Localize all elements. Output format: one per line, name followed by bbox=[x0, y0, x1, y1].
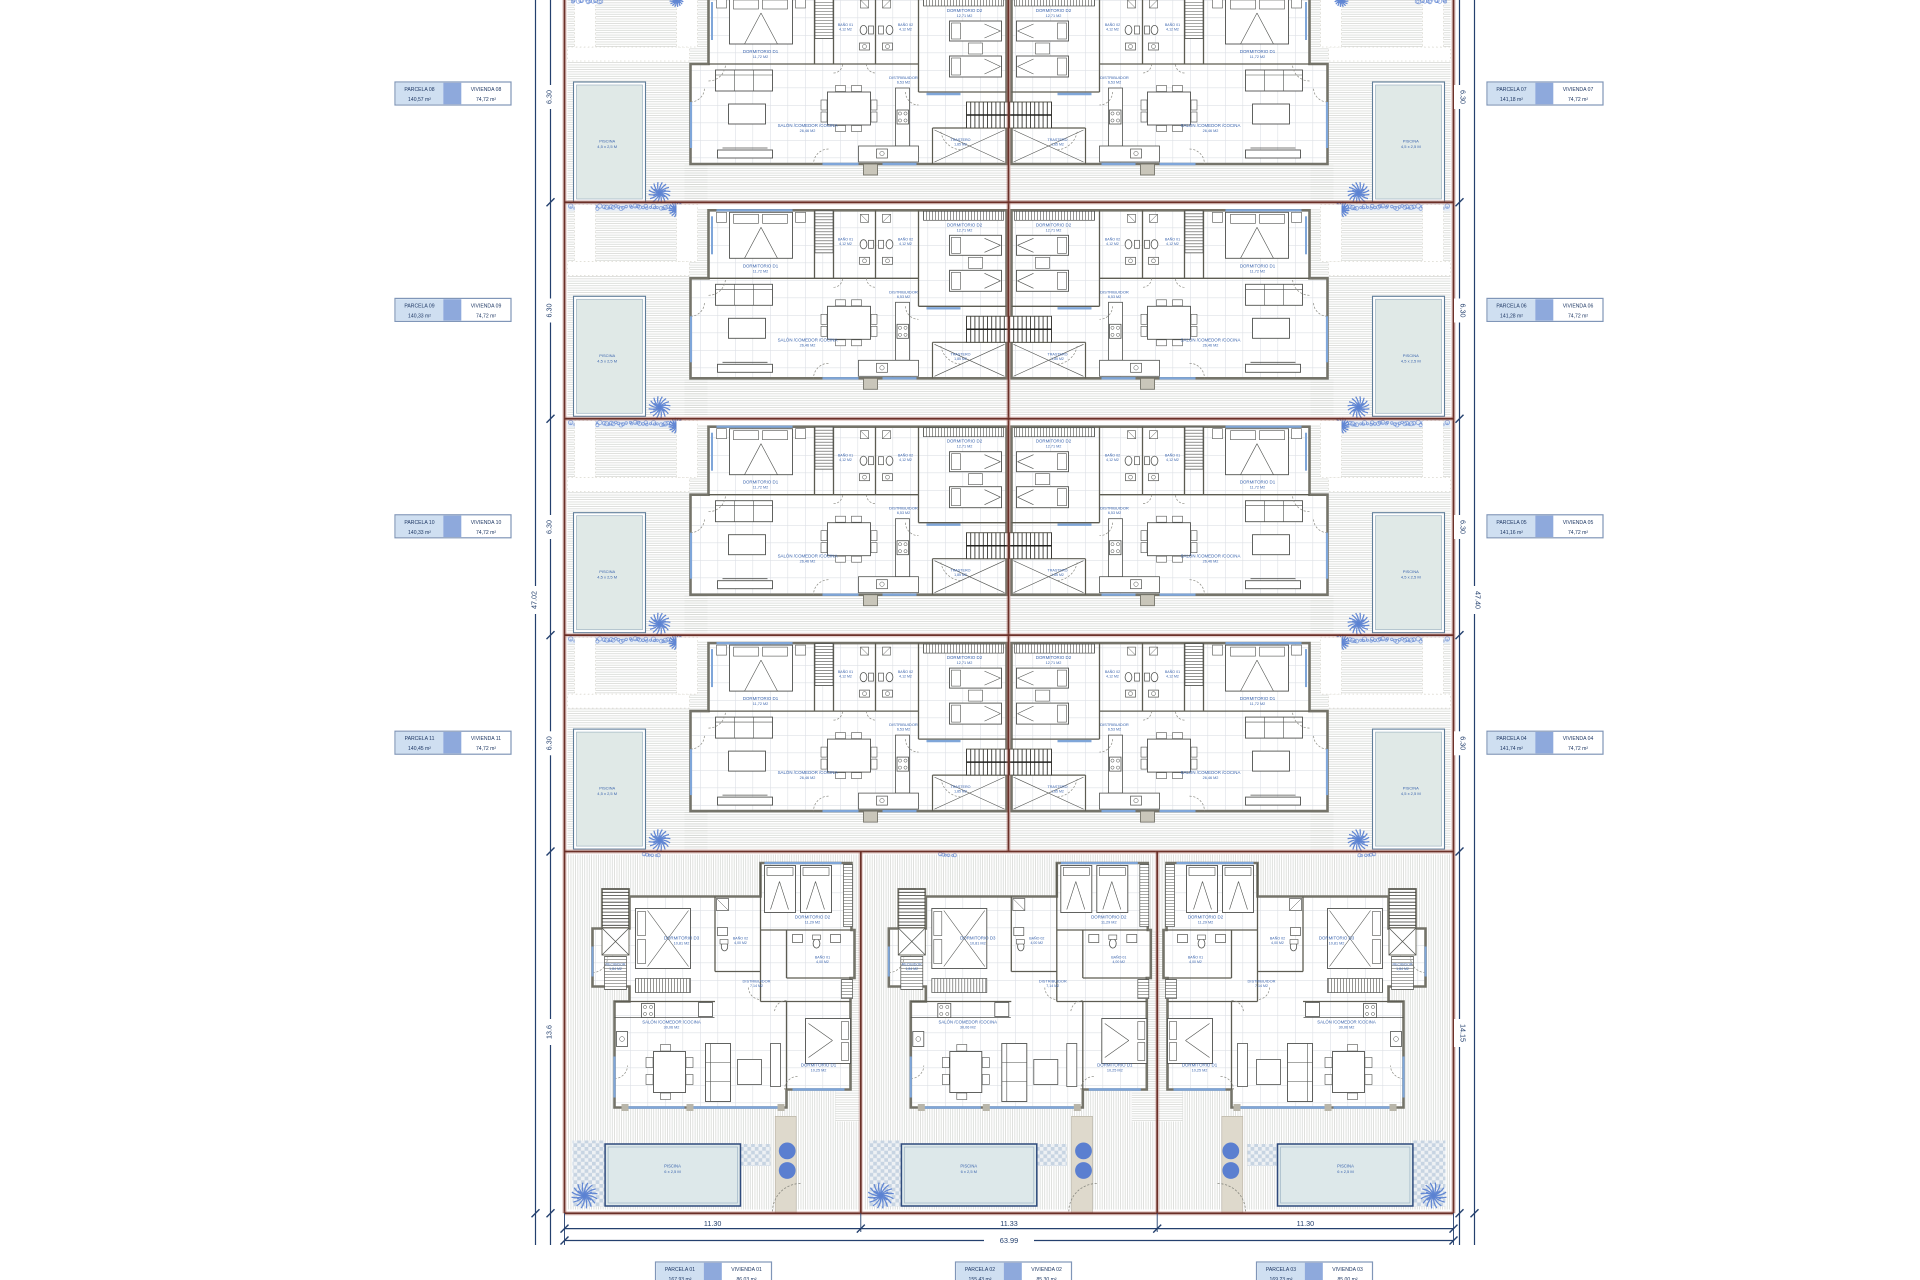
svg-text:TRASTERO: TRASTERO bbox=[1047, 352, 1067, 356]
svg-text:DISTRIBUIDOR: DISTRIBUIDOR bbox=[1100, 75, 1129, 80]
svg-text:BAÑO 01: BAÑO 01 bbox=[1165, 453, 1180, 458]
svg-text:30,06 M2: 30,06 M2 bbox=[664, 1026, 680, 1030]
svg-text:12,71 M2: 12,71 M2 bbox=[1046, 661, 1062, 665]
svg-text:RECIBIDOR: RECIBIDOR bbox=[902, 963, 922, 967]
svg-text:DORMITORIO D2: DORMITORIO D2 bbox=[795, 915, 831, 920]
svg-text:4,12 M2: 4,12 M2 bbox=[1166, 28, 1179, 32]
svg-text:4,5 x 2,5 M: 4,5 x 2,5 M bbox=[597, 575, 617, 580]
svg-text:141,74 m²: 141,74 m² bbox=[1500, 746, 1523, 752]
svg-text:DORMITORIO D3: DORMITORIO D3 bbox=[960, 936, 996, 941]
svg-text:26,46 M2: 26,46 M2 bbox=[800, 776, 816, 780]
svg-text:74,72 m²: 74,72 m² bbox=[476, 746, 496, 752]
svg-text:SALÓN /COMEDOR /COCINA: SALÓN /COMEDOR /COCINA bbox=[1317, 1020, 1376, 1025]
svg-text:VIVIENDA 02: VIVIENDA 02 bbox=[1031, 1267, 1062, 1273]
svg-text:74,72 m²: 74,72 m² bbox=[1568, 313, 1588, 319]
svg-text:BAÑO 01: BAÑO 01 bbox=[1188, 955, 1203, 960]
svg-text:BAÑO 02: BAÑO 02 bbox=[898, 236, 913, 241]
svg-text:BAÑO 01: BAÑO 01 bbox=[838, 236, 853, 241]
svg-text:12,71 M2: 12,71 M2 bbox=[957, 228, 973, 232]
svg-text:4,5 x 2,5 M: 4,5 x 2,5 M bbox=[1401, 358, 1421, 363]
svg-text:74,72 m²: 74,72 m² bbox=[476, 313, 496, 319]
svg-text:SALÓN /COMEDOR /COCINA: SALÓN /COMEDOR /COCINA bbox=[1181, 337, 1241, 342]
svg-text:PISCINA: PISCINA bbox=[1403, 353, 1419, 358]
svg-text:6 x 2,5 M: 6 x 2,5 M bbox=[961, 1169, 977, 1174]
svg-text:1,85 M2: 1,85 M2 bbox=[954, 790, 967, 794]
svg-text:12,71 M2: 12,71 M2 bbox=[957, 661, 973, 665]
svg-text:SALÓN /COMEDOR /COCINA: SALÓN /COMEDOR /COCINA bbox=[1181, 554, 1241, 559]
svg-text:7,14 M2: 7,14 M2 bbox=[750, 984, 763, 988]
svg-text:PARCELA 08: PARCELA 08 bbox=[404, 87, 434, 93]
svg-text:6 x 2,5 M: 6 x 2,5 M bbox=[1337, 1169, 1353, 1174]
svg-text:6.30: 6.30 bbox=[1459, 90, 1468, 104]
svg-text:PISCINA: PISCINA bbox=[664, 1164, 681, 1169]
svg-text:PISCINA: PISCINA bbox=[599, 786, 615, 791]
svg-text:DORMITORIO D1: DORMITORIO D1 bbox=[1240, 480, 1276, 485]
svg-text:TRASTERO: TRASTERO bbox=[1047, 785, 1067, 789]
svg-text:30,06 M2: 30,06 M2 bbox=[960, 1026, 976, 1030]
svg-text:DORMITORIO D2: DORMITORIO D2 bbox=[947, 655, 983, 660]
svg-text:RECIBIDOR: RECIBIDOR bbox=[606, 963, 626, 967]
svg-text:VIVIENDA 03: VIVIENDA 03 bbox=[1332, 1267, 1363, 1273]
svg-text:10,25 M2: 10,25 M2 bbox=[811, 1069, 827, 1073]
svg-text:TRASTERO: TRASTERO bbox=[1047, 569, 1067, 573]
svg-text:BAÑO 02: BAÑO 02 bbox=[898, 669, 913, 674]
svg-text:140,33 m²: 140,33 m² bbox=[408, 313, 431, 319]
svg-text:DORMITORIO D3: DORMITORIO D3 bbox=[1319, 936, 1355, 941]
svg-text:4,00 M2: 4,00 M2 bbox=[1112, 960, 1125, 964]
svg-text:BAÑO 01: BAÑO 01 bbox=[1165, 669, 1180, 674]
svg-text:141,16 m²: 141,16 m² bbox=[1500, 530, 1523, 536]
svg-text:PARCELA 11: PARCELA 11 bbox=[405, 736, 435, 742]
svg-text:1,84 M2: 1,84 M2 bbox=[609, 967, 622, 971]
svg-text:BAÑO 02: BAÑO 02 bbox=[1105, 453, 1120, 458]
svg-text:PARCELA 04: PARCELA 04 bbox=[1496, 736, 1526, 742]
svg-text:BAÑO 01: BAÑO 01 bbox=[838, 669, 853, 674]
svg-text:BAÑO 01: BAÑO 01 bbox=[1165, 236, 1180, 241]
svg-text:DORMITORIO D2: DORMITORIO D2 bbox=[1091, 915, 1127, 920]
svg-text:11,29 M2: 11,29 M2 bbox=[1198, 921, 1214, 925]
svg-text:DORMITORIO D1: DORMITORIO D1 bbox=[1182, 1063, 1218, 1068]
svg-text:1,84 M2: 1,84 M2 bbox=[905, 967, 918, 971]
svg-text:PISCINA: PISCINA bbox=[1403, 569, 1419, 574]
svg-text:PARCELA 07: PARCELA 07 bbox=[1496, 87, 1526, 93]
svg-text:12,71 M2: 12,71 M2 bbox=[957, 445, 973, 449]
svg-text:12,71 M2: 12,71 M2 bbox=[1046, 228, 1062, 232]
svg-text:DORMITORIO D1: DORMITORIO D1 bbox=[743, 480, 779, 485]
svg-text:6,53 M2: 6,53 M2 bbox=[1108, 728, 1121, 732]
svg-text:SALÓN /COMEDOR /COCINA: SALÓN /COMEDOR /COCINA bbox=[778, 123, 838, 128]
svg-text:10,81 M2: 10,81 M2 bbox=[1329, 942, 1345, 946]
svg-text:47.02: 47.02 bbox=[530, 591, 539, 609]
svg-text:4,00 M2: 4,00 M2 bbox=[1271, 941, 1284, 945]
svg-text:74,72 m²: 74,72 m² bbox=[1568, 746, 1588, 752]
svg-text:PISCINA: PISCINA bbox=[1337, 1164, 1354, 1169]
svg-text:PARCELA 06: PARCELA 06 bbox=[1496, 303, 1526, 309]
svg-text:PARCELA 03: PARCELA 03 bbox=[1266, 1267, 1296, 1273]
svg-text:PISCINA: PISCINA bbox=[960, 1164, 977, 1169]
svg-text:12,71 M2: 12,71 M2 bbox=[1046, 445, 1062, 449]
svg-text:14.15: 14.15 bbox=[1459, 1024, 1468, 1042]
svg-text:4,5 x 2,5 M: 4,5 x 2,5 M bbox=[597, 791, 617, 796]
svg-text:4,12 M2: 4,12 M2 bbox=[839, 675, 852, 679]
svg-text:PARCELA 01: PARCELA 01 bbox=[665, 1267, 695, 1273]
svg-text:VIVIENDA 05: VIVIENDA 05 bbox=[1563, 520, 1594, 526]
svg-text:TRASTERO: TRASTERO bbox=[950, 569, 970, 573]
svg-text:10,25 M2: 10,25 M2 bbox=[1192, 1069, 1208, 1073]
svg-text:12,71 M2: 12,71 M2 bbox=[957, 14, 973, 18]
svg-text:74,72 m²: 74,72 m² bbox=[476, 97, 496, 103]
svg-text:140,57 m²: 140,57 m² bbox=[408, 97, 431, 103]
svg-text:BAÑO 01: BAÑO 01 bbox=[815, 955, 830, 960]
svg-text:SALÓN /COMEDOR /COCINA: SALÓN /COMEDOR /COCINA bbox=[778, 337, 838, 342]
svg-text:VIVIENDA 08: VIVIENDA 08 bbox=[471, 87, 502, 93]
svg-text:DISTRIBUIDOR: DISTRIBUIDOR bbox=[1100, 289, 1129, 294]
svg-text:PISCINA: PISCINA bbox=[1403, 139, 1419, 144]
svg-text:DORMITORIO D1: DORMITORIO D1 bbox=[1240, 696, 1276, 701]
svg-text:DORMITORIO D2: DORMITORIO D2 bbox=[947, 222, 983, 227]
svg-text:4,12 M2: 4,12 M2 bbox=[1106, 675, 1119, 679]
svg-text:PISCINA: PISCINA bbox=[599, 353, 615, 358]
svg-text:DORMITORIO D3: DORMITORIO D3 bbox=[664, 936, 700, 941]
svg-text:11,72 M2: 11,72 M2 bbox=[753, 702, 769, 706]
svg-text:30,06 M2: 30,06 M2 bbox=[1339, 1026, 1355, 1030]
svg-text:4,5 x 2,5 M: 4,5 x 2,5 M bbox=[1401, 575, 1421, 580]
svg-text:SALÓN /COMEDOR /COCINA: SALÓN /COMEDOR /COCINA bbox=[642, 1020, 701, 1025]
svg-text:26,46 M2: 26,46 M2 bbox=[1203, 560, 1219, 564]
svg-text:4,5 x 2,5 M: 4,5 x 2,5 M bbox=[1401, 144, 1421, 149]
svg-text:4,00 M2: 4,00 M2 bbox=[1030, 941, 1043, 945]
svg-text:BAÑO 02: BAÑO 02 bbox=[733, 936, 748, 941]
svg-text:DORMITORIO D1: DORMITORIO D1 bbox=[1240, 49, 1276, 54]
svg-text:10,25 M2: 10,25 M2 bbox=[1107, 1069, 1123, 1073]
svg-text:6,53 M2: 6,53 M2 bbox=[897, 511, 910, 515]
svg-text:1,85 M2: 1,85 M2 bbox=[1051, 143, 1064, 147]
svg-text:BAÑO 02: BAÑO 02 bbox=[1105, 236, 1120, 241]
svg-text:PARCELA 09: PARCELA 09 bbox=[404, 303, 434, 309]
svg-text:4,12 M2: 4,12 M2 bbox=[899, 242, 912, 246]
svg-text:11,29 M2: 11,29 M2 bbox=[805, 921, 821, 925]
svg-text:DORMITORIO D2: DORMITORIO D2 bbox=[1036, 8, 1072, 13]
svg-text:6,53 M2: 6,53 M2 bbox=[897, 295, 910, 299]
svg-text:6,53 M2: 6,53 M2 bbox=[897, 728, 910, 732]
svg-text:1,85 M2: 1,85 M2 bbox=[1051, 573, 1064, 577]
svg-text:DISTRIBUIDOR: DISTRIBUIDOR bbox=[889, 289, 918, 294]
svg-text:DISTRIBUIDOR: DISTRIBUIDOR bbox=[1100, 506, 1129, 511]
svg-text:1,85 M2: 1,85 M2 bbox=[1051, 357, 1064, 361]
svg-text:10,81 M2: 10,81 M2 bbox=[674, 942, 690, 946]
svg-text:6.30: 6.30 bbox=[545, 520, 554, 534]
svg-text:RECIBIDOR: RECIBIDOR bbox=[1393, 963, 1413, 967]
svg-text:BAÑO 01: BAÑO 01 bbox=[1165, 22, 1180, 27]
svg-text:6,53 M2: 6,53 M2 bbox=[897, 81, 910, 85]
svg-text:11.30: 11.30 bbox=[1297, 1219, 1314, 1228]
svg-text:11,72 M2: 11,72 M2 bbox=[1250, 486, 1266, 490]
svg-text:26,46 M2: 26,46 M2 bbox=[800, 560, 816, 564]
svg-text:DISTRIBUIDOR: DISTRIBUIDOR bbox=[1039, 979, 1067, 984]
svg-text:74,72 m²: 74,72 m² bbox=[1568, 97, 1588, 103]
svg-text:PARCELA 05: PARCELA 05 bbox=[1496, 520, 1526, 526]
svg-text:DORMITORIO D1: DORMITORIO D1 bbox=[743, 49, 779, 54]
svg-text:SALÓN /COMEDOR /COCINA: SALÓN /COMEDOR /COCINA bbox=[778, 770, 838, 775]
svg-text:PISCINA: PISCINA bbox=[1403, 786, 1419, 791]
svg-text:DORMITORIO D2: DORMITORIO D2 bbox=[1036, 222, 1072, 227]
svg-text:63.99: 63.99 bbox=[1000, 1236, 1019, 1245]
svg-text:DORMITORIO D1: DORMITORIO D1 bbox=[801, 1063, 837, 1068]
svg-text:26,46 M2: 26,46 M2 bbox=[1203, 129, 1219, 133]
svg-text:DORMITORIO D2: DORMITORIO D2 bbox=[947, 8, 983, 13]
svg-text:SALÓN /COMEDOR /COCINA: SALÓN /COMEDOR /COCINA bbox=[778, 554, 838, 559]
svg-text:BAÑO 02: BAÑO 02 bbox=[898, 22, 913, 27]
svg-text:26,46 M2: 26,46 M2 bbox=[1203, 343, 1219, 347]
svg-text:4,12 M2: 4,12 M2 bbox=[839, 242, 852, 246]
svg-text:BAÑO 02: BAÑO 02 bbox=[1105, 669, 1120, 674]
svg-text:1,85 M2: 1,85 M2 bbox=[954, 143, 967, 147]
svg-text:11,72 M2: 11,72 M2 bbox=[1250, 55, 1266, 59]
svg-text:DORMITORIO D2: DORMITORIO D2 bbox=[1188, 915, 1224, 920]
svg-text:DORMITORIO D1: DORMITORIO D1 bbox=[1097, 1063, 1133, 1068]
svg-text:11,72 M2: 11,72 M2 bbox=[1250, 269, 1266, 273]
svg-text:VIVIENDA 06: VIVIENDA 06 bbox=[1563, 303, 1594, 309]
svg-text:DORMITORIO D2: DORMITORIO D2 bbox=[947, 439, 983, 444]
svg-text:TRASTERO: TRASTERO bbox=[950, 785, 970, 789]
svg-text:1,84 M2: 1,84 M2 bbox=[1396, 967, 1409, 971]
svg-text:DORMITORIO D2: DORMITORIO D2 bbox=[1036, 439, 1072, 444]
svg-text:1,85 M2: 1,85 M2 bbox=[954, 573, 967, 577]
svg-text:VIVIENDA 09: VIVIENDA 09 bbox=[471, 303, 502, 309]
svg-text:26,46 M2: 26,46 M2 bbox=[800, 129, 816, 133]
svg-text:6.30: 6.30 bbox=[1459, 736, 1468, 750]
svg-text:11,29 M2: 11,29 M2 bbox=[1101, 921, 1117, 925]
svg-text:SALÓN /COMEDOR /COCINA: SALÓN /COMEDOR /COCINA bbox=[1181, 123, 1241, 128]
svg-text:DISTRIBUIDOR: DISTRIBUIDOR bbox=[743, 979, 771, 984]
svg-text:1,85 M2: 1,85 M2 bbox=[954, 357, 967, 361]
svg-text:BAÑO 02: BAÑO 02 bbox=[1270, 936, 1285, 941]
svg-text:11,72 M2: 11,72 M2 bbox=[753, 486, 769, 490]
svg-text:DISTRIBUIDOR: DISTRIBUIDOR bbox=[1100, 722, 1129, 727]
svg-text:TRASTERO: TRASTERO bbox=[950, 138, 970, 142]
svg-text:4,5 x 2,5 M: 4,5 x 2,5 M bbox=[597, 144, 617, 149]
svg-text:4,00 M2: 4,00 M2 bbox=[816, 960, 829, 964]
svg-text:BAÑO 02: BAÑO 02 bbox=[1029, 936, 1044, 941]
svg-text:VIVIENDA 07: VIVIENDA 07 bbox=[1563, 87, 1594, 93]
svg-text:26,46 M2: 26,46 M2 bbox=[800, 343, 816, 347]
svg-text:6,53 M2: 6,53 M2 bbox=[1108, 81, 1121, 85]
svg-text:4,00 M2: 4,00 M2 bbox=[734, 941, 747, 945]
svg-text:6 x 2,5 M: 6 x 2,5 M bbox=[664, 1169, 680, 1174]
svg-text:BAÑO 02: BAÑO 02 bbox=[1105, 22, 1120, 27]
svg-text:4,12 M2: 4,12 M2 bbox=[1166, 458, 1179, 462]
svg-text:4,12 M2: 4,12 M2 bbox=[899, 458, 912, 462]
svg-text:4,5 x 2,5 M: 4,5 x 2,5 M bbox=[1401, 791, 1421, 796]
svg-text:4,12 M2: 4,12 M2 bbox=[1106, 28, 1119, 32]
svg-text:DORMITORIO D2: DORMITORIO D2 bbox=[1036, 655, 1072, 660]
svg-text:DISTRIBUIDOR: DISTRIBUIDOR bbox=[889, 722, 918, 727]
svg-text:VIVIENDA 10: VIVIENDA 10 bbox=[471, 520, 502, 526]
svg-text:47.40: 47.40 bbox=[1474, 591, 1483, 609]
svg-text:6.30: 6.30 bbox=[1459, 520, 1468, 534]
svg-text:1,85 M2: 1,85 M2 bbox=[1051, 790, 1064, 794]
svg-text:7,14 M2: 7,14 M2 bbox=[1255, 984, 1268, 988]
svg-text:6.30: 6.30 bbox=[545, 304, 554, 318]
svg-text:140,33 m²: 140,33 m² bbox=[408, 530, 431, 536]
svg-text:4,12 M2: 4,12 M2 bbox=[899, 675, 912, 679]
svg-text:DISTRIBUIDOR: DISTRIBUIDOR bbox=[1248, 979, 1276, 984]
svg-text:BAÑO 01: BAÑO 01 bbox=[838, 22, 853, 27]
svg-text:DISTRIBUIDOR: DISTRIBUIDOR bbox=[889, 506, 918, 511]
svg-text:BAÑO 01: BAÑO 01 bbox=[1111, 955, 1126, 960]
svg-text:TRASTERO: TRASTERO bbox=[1047, 138, 1067, 142]
svg-text:13.6: 13.6 bbox=[545, 1025, 554, 1039]
svg-text:SALÓN /COMEDOR /COCINA: SALÓN /COMEDOR /COCINA bbox=[1181, 770, 1241, 775]
svg-text:4,5 x 2,5 M: 4,5 x 2,5 M bbox=[597, 358, 617, 363]
svg-text:4,12 M2: 4,12 M2 bbox=[839, 458, 852, 462]
svg-text:6.30: 6.30 bbox=[1459, 304, 1468, 318]
svg-text:11,72 M2: 11,72 M2 bbox=[1250, 702, 1266, 706]
svg-text:12,71 M2: 12,71 M2 bbox=[1046, 14, 1062, 18]
svg-text:141,18 m²: 141,18 m² bbox=[1500, 97, 1523, 103]
svg-text:7,14 M2: 7,14 M2 bbox=[1046, 984, 1059, 988]
svg-text:BAÑO 01: BAÑO 01 bbox=[838, 453, 853, 458]
svg-text:PARCELA 10: PARCELA 10 bbox=[404, 520, 434, 526]
svg-text:6.30: 6.30 bbox=[545, 736, 554, 750]
svg-text:11.30: 11.30 bbox=[704, 1219, 721, 1228]
svg-text:74,72 m²: 74,72 m² bbox=[476, 530, 496, 536]
svg-text:DORMITORIO D1: DORMITORIO D1 bbox=[743, 263, 779, 268]
svg-text:11,72 M2: 11,72 M2 bbox=[753, 269, 769, 273]
svg-text:VIVIENDA 01: VIVIENDA 01 bbox=[731, 1267, 762, 1273]
svg-text:26,46 M2: 26,46 M2 bbox=[1203, 776, 1219, 780]
svg-text:4,12 M2: 4,12 M2 bbox=[1106, 458, 1119, 462]
svg-text:11,72 M2: 11,72 M2 bbox=[753, 55, 769, 59]
svg-text:6.30: 6.30 bbox=[545, 90, 554, 104]
svg-text:4,12 M2: 4,12 M2 bbox=[899, 28, 912, 32]
svg-text:4,12 M2: 4,12 M2 bbox=[1106, 242, 1119, 246]
svg-text:PARCELA 02: PARCELA 02 bbox=[965, 1267, 995, 1273]
svg-text:4,12 M2: 4,12 M2 bbox=[839, 28, 852, 32]
svg-text:DORMITORIO D1: DORMITORIO D1 bbox=[1240, 263, 1276, 268]
svg-text:PISCINA: PISCINA bbox=[599, 569, 615, 574]
svg-text:BAÑO 02: BAÑO 02 bbox=[898, 453, 913, 458]
svg-text:DISTRIBUIDOR: DISTRIBUIDOR bbox=[889, 75, 918, 80]
svg-text:4,12 M2: 4,12 M2 bbox=[1166, 242, 1179, 246]
svg-text:VIVIENDA 11: VIVIENDA 11 bbox=[471, 736, 501, 742]
svg-text:6,53 M2: 6,53 M2 bbox=[1108, 295, 1121, 299]
svg-text:6,53 M2: 6,53 M2 bbox=[1108, 511, 1121, 515]
svg-text:4,12 M2: 4,12 M2 bbox=[1166, 675, 1179, 679]
svg-text:DORMITORIO D1: DORMITORIO D1 bbox=[743, 696, 779, 701]
svg-text:VIVIENDA 04: VIVIENDA 04 bbox=[1563, 736, 1594, 742]
svg-text:10,81 M2: 10,81 M2 bbox=[970, 942, 986, 946]
svg-text:140,45 m²: 140,45 m² bbox=[408, 746, 431, 752]
svg-text:TRASTERO: TRASTERO bbox=[950, 352, 970, 356]
svg-text:141,28 m²: 141,28 m² bbox=[1500, 313, 1523, 319]
svg-text:PISCINA: PISCINA bbox=[599, 139, 615, 144]
svg-text:74,72 m²: 74,72 m² bbox=[1568, 530, 1588, 536]
svg-text:11.33: 11.33 bbox=[1000, 1219, 1017, 1228]
svg-text:4,00 M2: 4,00 M2 bbox=[1189, 960, 1202, 964]
svg-text:SALÓN /COMEDOR /COCINA: SALÓN /COMEDOR /COCINA bbox=[939, 1020, 998, 1025]
